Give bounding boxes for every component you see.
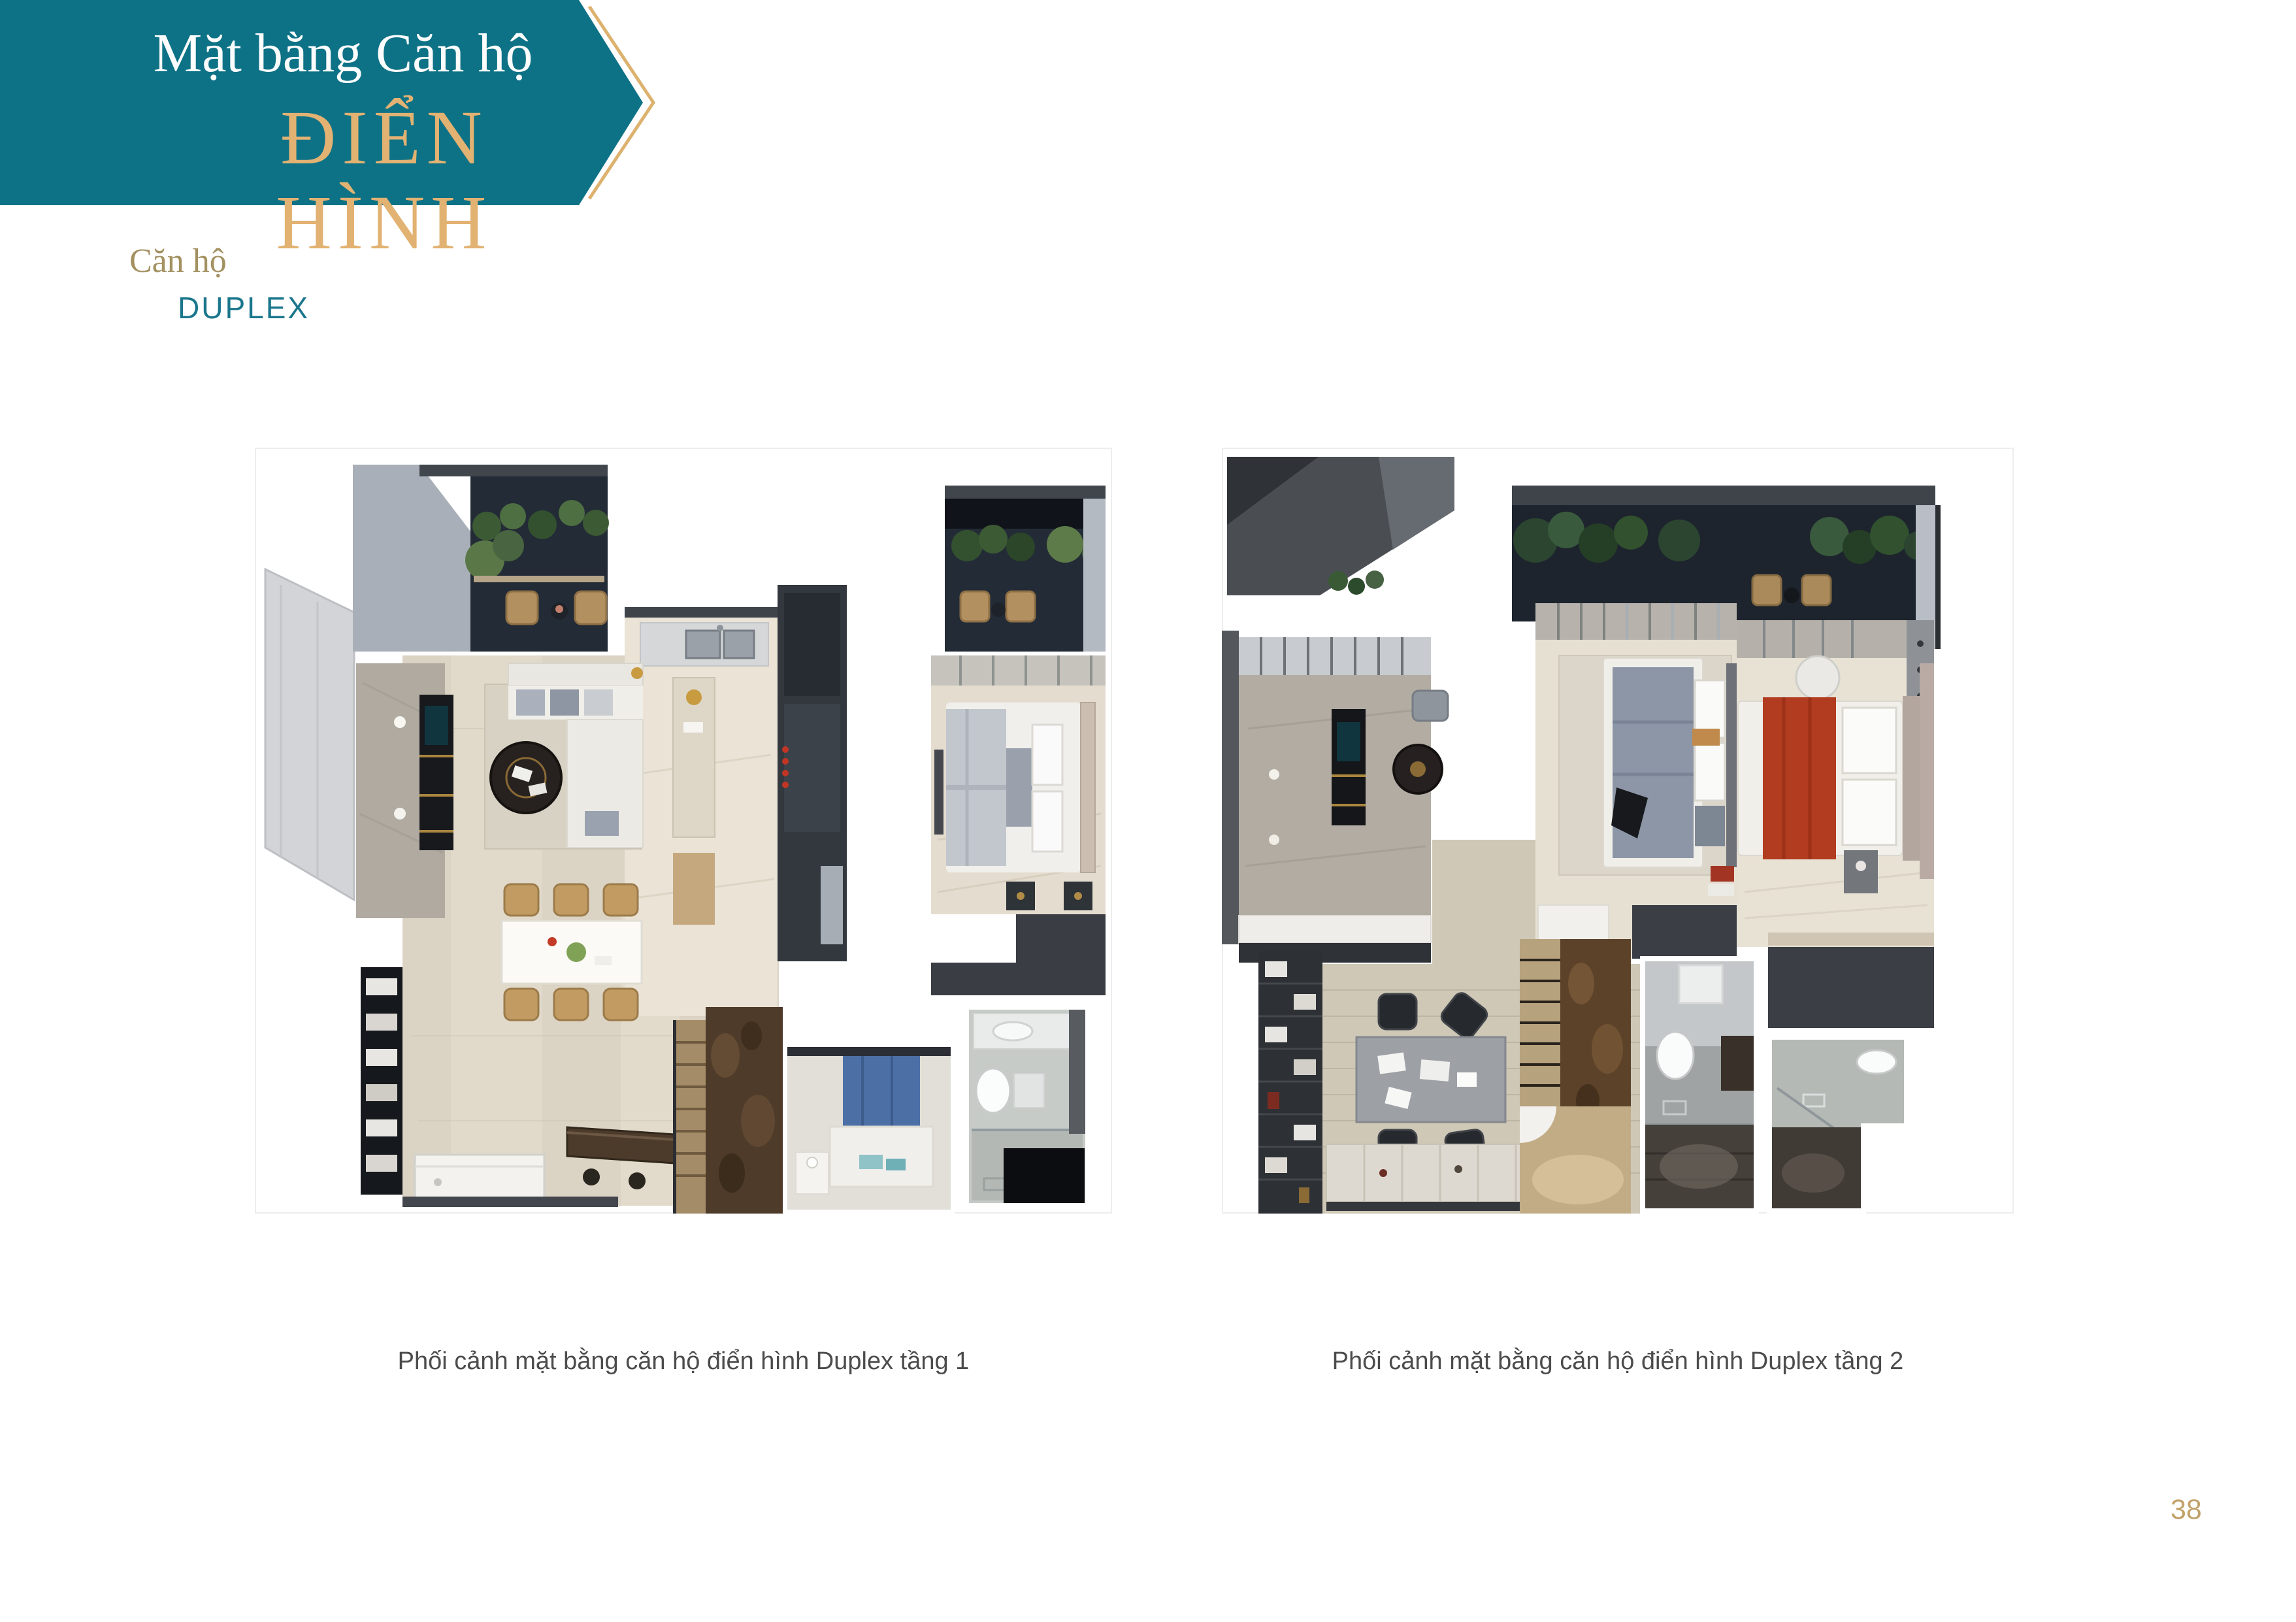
red-book: [1711, 866, 1734, 882]
ceiling-light: [1269, 835, 1279, 845]
plant: [1614, 516, 1648, 550]
centerpiece-plant: [566, 942, 586, 962]
headboard: [1081, 703, 1095, 872]
dining-chair: [504, 989, 538, 1020]
low-cabinet: [1239, 916, 1431, 943]
title-banner: Mặt bằng Căn hộ ĐIỂN HÌNH: [0, 0, 660, 207]
rattan-chair: [1802, 575, 1831, 605]
blue-bedding: [843, 1056, 920, 1127]
office-chair: [1379, 994, 1417, 1029]
kitchen-cabinets: [778, 585, 847, 961]
pillow: [1843, 708, 1896, 773]
side-table: [1784, 588, 1799, 603]
gray-pillow: [1695, 806, 1725, 846]
apartment-type-name: DUPLEX: [178, 290, 310, 325]
gold-kettle: [686, 689, 702, 705]
dining-area: [502, 884, 642, 1020]
dining-chair: [604, 989, 638, 1020]
gray-pillow: [1006, 748, 1032, 827]
page-number: 38: [2171, 1494, 2202, 1526]
toilet: [976, 1068, 1010, 1113]
banner-title-line1: Mặt bằng Căn hộ: [131, 22, 555, 86]
throw-pillow: [585, 811, 619, 836]
balcony-side-wall: [1083, 499, 1106, 652]
ceiling-light: [394, 716, 406, 728]
plant: [559, 500, 585, 526]
floorplan-duplex-level-1: [255, 448, 1112, 1214]
stove-knob: [782, 782, 789, 788]
round-table: [1796, 656, 1839, 699]
banner-title-line2: ĐIỂN HÌNH: [175, 95, 593, 265]
pillow: [1695, 743, 1725, 801]
bathroom-1: [1640, 956, 1759, 1214]
sink-basin: [724, 631, 754, 658]
plant: [493, 530, 524, 561]
wall-block: [1632, 905, 1737, 959]
balcony-2: [945, 486, 1106, 652]
kitchen: [625, 607, 778, 1016]
armchair: [1413, 691, 1448, 721]
toilet: [1657, 1032, 1694, 1079]
ceiling-light: [394, 808, 406, 819]
dining-chair: [554, 989, 588, 1020]
cushion: [550, 689, 579, 716]
plant: [500, 503, 526, 529]
rattan-chair: [960, 591, 989, 621]
pillow: [1032, 725, 1062, 785]
floorplan-duplex-level-2: [1222, 448, 2014, 1214]
sink: [1857, 1050, 1896, 1074]
towels: [859, 1155, 883, 1169]
pillow: [1032, 791, 1062, 852]
rattan-chair: [1752, 575, 1781, 605]
bathroom-1: [964, 1004, 1091, 1208]
ceiling-light: [1269, 769, 1279, 780]
bedroom-2: [783, 1043, 955, 1214]
red-blanket: [1763, 697, 1836, 859]
headboard: [1726, 663, 1737, 867]
sofa-back: [508, 663, 643, 686]
rattan-chair: [506, 591, 538, 624]
window-band: [1535, 603, 1737, 640]
dining-chair: [604, 884, 638, 916]
headboard: [1903, 696, 1920, 861]
wall-block: [1768, 947, 1934, 1028]
dresser: [1538, 905, 1609, 943]
cistern: [1679, 965, 1722, 1003]
window-band: [1737, 620, 1934, 658]
plant: [951, 530, 983, 561]
side-table: [991, 603, 1006, 617]
plant: [979, 525, 1008, 554]
sink: [993, 1022, 1032, 1040]
cushion: [584, 689, 613, 716]
wardrobe-panel: [265, 569, 354, 900]
island-wood-base: [673, 853, 715, 925]
bedroom-2: [1535, 603, 1737, 959]
sink-basin: [686, 631, 720, 658]
bed-bench: [934, 750, 943, 835]
window-band: [931, 655, 1106, 686]
plant: [1047, 526, 1083, 563]
shower-tray: [415, 1155, 544, 1202]
plant: [583, 510, 609, 536]
plant: [1579, 523, 1618, 563]
padded-wall-panel: [1920, 663, 1934, 879]
floorplan-level2-render: [1222, 448, 2014, 1214]
balcony-1: [353, 465, 609, 652]
brochure-page: Mặt bằng Căn hộ ĐIỂN HÌNH Căn hộ DUPLEX: [0, 0, 2296, 1622]
accent-pillow: [1692, 729, 1720, 746]
plant: [1006, 533, 1035, 561]
fridge: [821, 866, 843, 944]
stove-knob: [782, 746, 789, 753]
staircase: [673, 1007, 783, 1214]
plant: [1366, 571, 1384, 589]
vanity: [1721, 1036, 1754, 1091]
rattan-chair: [575, 591, 606, 624]
stove-knob: [782, 770, 789, 776]
floorplan-level1-render: [255, 448, 1112, 1214]
dining-chair: [504, 884, 538, 916]
bar-stool: [583, 1168, 600, 1185]
plant: [1870, 516, 1909, 555]
caption-level-2: Phối cảnh mặt bằng căn hộ điển hình Dupl…: [1222, 1348, 2014, 1376]
dining-chair: [554, 884, 588, 916]
living-room: [485, 663, 643, 849]
lamp: [807, 1157, 817, 1168]
floor-lamp: [631, 667, 643, 679]
apartment-type-prefix: Căn hộ: [129, 242, 227, 280]
cushion: [516, 689, 545, 716]
nightstand: [1844, 850, 1878, 893]
rattan-chair: [1006, 591, 1035, 621]
papers: [1457, 1072, 1477, 1087]
plant: [1658, 520, 1700, 561]
papers: [1377, 1052, 1406, 1074]
papers: [1420, 1059, 1450, 1082]
family-room: [1222, 631, 1448, 963]
stair-rail: [673, 1020, 676, 1214]
low-cabinets: [1326, 1144, 1551, 1202]
plant: [528, 510, 557, 539]
towels: [886, 1159, 906, 1170]
toilet-tank: [1014, 1074, 1044, 1108]
caption-level-1: Phối cảnh mặt bằng căn hộ điển hình Dupl…: [255, 1348, 1112, 1376]
staircase: [1520, 939, 1631, 1214]
pillow: [1843, 780, 1896, 845]
plant: [1348, 578, 1365, 595]
plant: [1328, 571, 1348, 591]
stove-knob: [782, 758, 789, 765]
bar-stool: [629, 1172, 646, 1189]
dark-closet: [1004, 1148, 1085, 1203]
